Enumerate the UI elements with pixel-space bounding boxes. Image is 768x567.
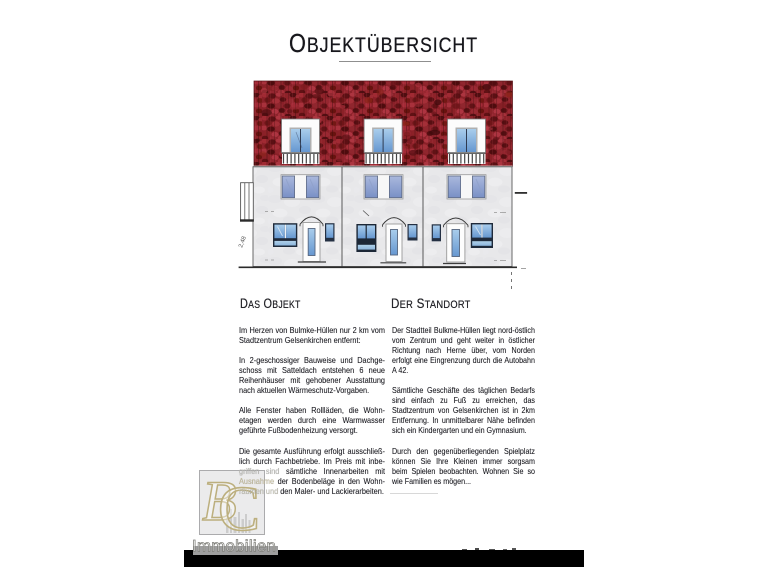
svg-text:Immobilien: Immobilien xyxy=(192,537,276,556)
svg-text:2,48: 2,48 xyxy=(238,235,248,249)
